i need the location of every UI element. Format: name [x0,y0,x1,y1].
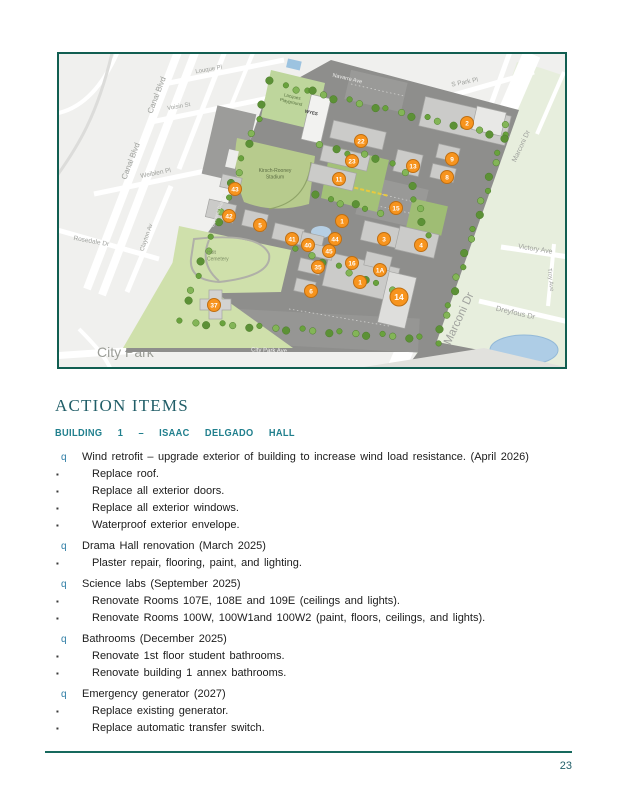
group-title-row: qScience labs (September 2025) [55,576,590,593]
action-item-text: Renovate building 1 annex bathrooms. [92,665,590,682]
tree-icon [316,141,323,148]
marker-number: 15 [392,205,400,212]
tree-icon [309,87,317,95]
tree-icon [330,96,338,104]
tree-icon [502,121,509,128]
action-item-row: ▪Replace existing generator. [55,703,590,720]
tree-icon [372,155,380,163]
tree-icon [196,273,202,279]
tree-icon [326,329,334,337]
marker-number: 40 [304,242,312,249]
marker-number: 3 [382,236,386,243]
tree-icon [406,335,414,343]
tree-icon [485,173,493,181]
map-marker-5: 5 [254,219,267,232]
action-item-row: ▪Replace roof. [55,466,590,483]
tree-icon [337,201,344,208]
marker-number: 1 [340,218,344,225]
marker-number: 9 [450,156,454,163]
tree-icon [417,334,423,340]
map-marker-41: 41 [286,233,299,246]
tree-icon [282,327,290,335]
map-marker-35: 35 [312,261,325,274]
tree-icon [309,252,316,259]
map-marker-44: 44 [329,233,342,246]
tree-icon [476,127,483,134]
map-marker-1: 1 [336,215,349,228]
building-heading: BUILDING 1 – ISAAC DELGADO HALL [55,427,295,439]
tree-icon [283,83,289,89]
tree-icon [353,330,360,337]
tree-icon [494,150,500,156]
group-title-text: Emergency generator (2027) [82,686,590,703]
group-bullet-glyph: q [55,576,82,593]
tree-icon [337,329,343,335]
action-group-1: qWind retrofit – upgrade exterior of bui… [55,449,590,534]
map-marker-3: 3 [378,233,391,246]
tree-icon [461,264,467,270]
map-marker-14: 14 [390,288,408,306]
tree-icon [411,197,417,203]
item-bullet-glyph: ▪ [55,483,92,500]
tree-icon [409,182,417,190]
map-marker-11: 11 [333,173,346,186]
tree-icon [470,226,476,232]
map-marker-43: 43 [229,183,242,196]
action-item-text: Replace automatic transfer switch. [92,720,590,737]
item-bullet-glyph: ▪ [55,500,92,517]
marker-number: 42 [225,213,233,220]
map-marker-2: 2 [461,117,474,130]
action-group-3: qScience labs (September 2025)▪Renovate … [55,576,590,627]
map-marker-45: 45 [323,245,336,258]
group-title-text: Science labs (September 2025) [82,576,590,593]
marker-number: 37 [210,302,218,309]
tree-icon [501,135,509,143]
group-bullet-glyph: q [55,538,82,555]
tree-icon [185,297,193,305]
action-item-row: ▪Renovate 1st floor student bathrooms. [55,648,590,665]
tree-icon [258,101,266,109]
map-marker-37: 37 [208,299,221,312]
tree-icon [426,233,432,239]
tree-icon [193,320,200,327]
marker-number: 41 [288,236,296,243]
tree-icon [444,312,451,319]
action-items-list: qWind retrofit – upgrade exterior of bui… [55,449,590,737]
group-bullet-glyph: q [55,631,82,648]
tree-icon [436,341,442,347]
tree-icon [266,77,274,85]
map-marker-4: 4 [415,239,428,252]
tree-icon [380,331,386,337]
group-bullet-glyph: q [55,449,82,466]
map-marker-16: 16 [346,257,359,270]
action-item-row: ▪Replace automatic transfer switch. [55,720,590,737]
map-marker-1A: 1A [374,264,387,277]
map-marker-1: 1 [354,276,367,289]
item-bullet-glyph: ▪ [55,610,92,627]
tree-icon [309,328,316,335]
action-item-text: Replace all exterior windows. [92,500,590,517]
tree-icon [208,234,214,240]
marker-number: 44 [331,236,339,243]
marker-number: 1 [358,279,362,286]
tree-icon [293,87,300,94]
map-marker-42: 42 [223,210,236,223]
action-item-text: Renovate 1st floor student bathrooms. [92,648,590,665]
item-bullet-glyph: ▪ [55,517,92,534]
map-marker-23: 23 [346,155,359,168]
tree-icon [373,280,379,286]
tree-icon [336,263,342,269]
action-item-text: Replace roof. [92,466,590,483]
action-item-row: ▪Replace all exterior doors. [55,483,590,500]
map-marker-6: 6 [305,285,318,298]
tree-icon [485,188,491,194]
campus-map-svg: City Park [59,54,565,367]
tree-icon [246,324,254,332]
marker-number: 11 [336,176,343,183]
action-item-row: ▪Waterproof exterior envelope. [55,517,590,534]
tree-icon [450,122,458,130]
action-item-text: Renovate Rooms 100W, 100W1and 100W2 (pai… [92,610,590,627]
item-bullet-glyph: ▪ [55,665,92,682]
tree-icon [220,321,226,327]
tree-icon [257,116,263,122]
tree-icon [328,196,334,202]
group-title-row: qBathrooms (December 2025) [55,631,590,648]
group-bullet-glyph: q [55,686,82,703]
tree-icon [346,270,353,277]
document-page: { "document": { "section_heading": "ACTI… [0,0,618,800]
map-marker-9: 9 [446,153,459,166]
action-item-text: Waterproof exterior envelope. [92,517,590,534]
marker-number: 1A [376,267,385,274]
tree-icon [389,333,396,340]
tree-icon [246,140,254,148]
marker-number: 14 [394,292,404,302]
marker-number: 23 [348,158,356,165]
tree-icon [476,211,484,219]
action-group-2: qDrama Hall renovation (March 2025)▪Plas… [55,538,590,572]
marker-number: 2 [465,120,469,127]
action-item-row: ▪Renovate Rooms 100W, 100W1and 100W2 (pa… [55,610,590,627]
tree-icon [300,326,306,332]
item-bullet-glyph: ▪ [55,593,92,610]
marker-number: 35 [314,264,322,271]
action-group-5: qEmergency generator (2027)▪Replace exis… [55,686,590,737]
marker-number: 5 [258,222,262,229]
tree-icon [451,287,459,295]
tree-icon [293,246,299,252]
action-item-text: Plaster repair, flooring, paint, and lig… [92,555,590,572]
tree-icon [383,105,389,111]
map-label: City Park Ave [251,347,288,354]
tree-icon [177,318,183,324]
tree-icon [453,274,460,281]
map-marker-13: 13 [407,160,420,173]
page-number: 23 [45,760,572,772]
tree-icon [445,303,451,309]
group-title-row: qWind retrofit – upgrade exterior of bui… [55,449,590,466]
item-bullet-glyph: ▪ [55,703,92,720]
marker-number: 13 [409,163,417,170]
item-bullet-glyph: ▪ [55,555,92,572]
tree-icon [273,325,280,332]
tree-icon [236,169,243,176]
tree-icon [372,104,380,112]
tree-icon [493,159,500,166]
action-item-row: ▪Renovate building 1 annex bathrooms. [55,665,590,682]
section-heading: ACTION ITEMS [55,396,189,416]
marker-number: 45 [325,248,333,255]
group-title-text: Drama Hall renovation (March 2025) [82,538,590,555]
tree-icon [347,97,353,103]
marker-number: 4 [419,242,423,249]
tree-icon [408,113,416,121]
action-item-text: Renovate Rooms 107E, 108E and 109E (ceil… [92,593,590,610]
tree-icon [320,92,327,99]
tree-icon [460,249,468,257]
marker-number: 16 [348,260,356,267]
item-bullet-glyph: ▪ [55,648,92,665]
marker-number: 22 [357,138,365,145]
group-title-text: Wind retrofit – upgrade exterior of buil… [82,449,590,466]
footer-rule [45,751,572,753]
tree-icon [362,332,370,340]
map-marker-8: 8 [441,171,454,184]
marker-number: 43 [231,186,239,193]
tree-icon [312,191,320,199]
tree-icon [356,100,363,107]
action-item-row: ▪Replace all exterior windows. [55,500,590,517]
tree-icon [197,258,205,266]
tree-icon [238,156,244,162]
tree-icon [229,322,236,329]
marker-number: 8 [445,174,449,181]
map-marker-40: 40 [302,239,315,252]
action-item-row: ▪Renovate Rooms 107E, 108E and 109E (cei… [55,593,590,610]
tree-icon [187,287,194,294]
tree-icon [468,236,475,243]
tree-icon [417,205,424,212]
tree-icon [398,109,405,116]
tree-icon [257,323,263,329]
group-title-text: Bathrooms (December 2025) [82,631,590,648]
map-marker-15: 15 [390,202,403,215]
tree-icon [361,151,368,158]
action-group-4: qBathrooms (December 2025)▪Renovate 1st … [55,631,590,682]
tree-icon [425,114,431,120]
tree-icon [436,326,444,334]
tree-icon [362,206,368,212]
tree-icon [486,131,494,139]
tree-icon [202,321,210,329]
tree-icon [390,161,396,167]
tree-icon [377,210,384,217]
group-title-row: qEmergency generator (2027) [55,686,590,703]
tree-icon [248,130,255,137]
action-item-row: ▪Plaster repair, flooring, paint, and li… [55,555,590,572]
action-item-text: Replace existing generator. [92,703,590,720]
action-item-text: Replace all exterior doors. [92,483,590,500]
tree-icon [333,145,341,153]
tree-icon [418,218,426,226]
item-bullet-glyph: ▪ [55,720,92,737]
map-marker-22: 22 [355,135,368,148]
group-title-row: qDrama Hall renovation (March 2025) [55,538,590,555]
tree-icon [352,200,360,208]
marker-number: 6 [309,288,313,295]
tree-icon [477,198,484,205]
item-bullet-glyph: ▪ [55,466,92,483]
tree-icon [434,118,441,125]
campus-map: City Park [57,52,567,369]
